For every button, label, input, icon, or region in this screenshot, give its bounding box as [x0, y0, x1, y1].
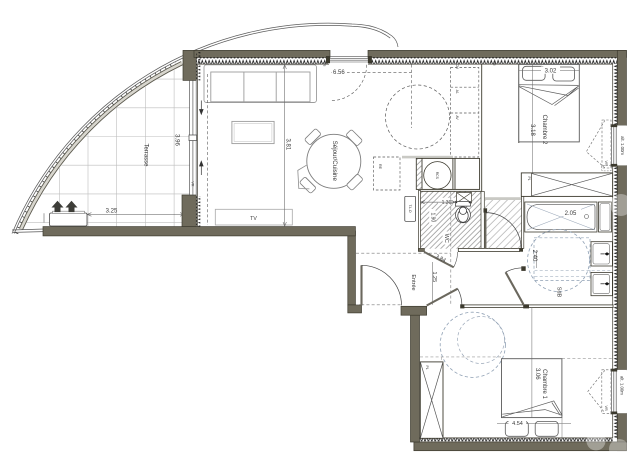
svg-text:alt. 1.00m: alt. 1.00m	[620, 136, 625, 155]
svg-text:Séjour/Cuisine: Séjour/Cuisine	[331, 141, 338, 182]
svg-text:3.18: 3.18	[529, 124, 535, 136]
svg-text:1.30: 1.30	[442, 200, 452, 206]
svg-text:3.06: 3.06	[534, 368, 540, 380]
svg-text:Chambre 1: Chambre 1	[541, 369, 547, 399]
svg-text:1.25: 1.25	[431, 271, 437, 282]
svg-text:6.56: 6.56	[333, 70, 345, 76]
svg-text:3.02: 3.02	[545, 69, 557, 75]
svg-text:PL: PL	[527, 177, 531, 181]
svg-text:3.81: 3.81	[285, 138, 291, 150]
svg-text:3.25: 3.25	[106, 209, 118, 215]
svg-text:VR: VR	[492, 61, 496, 66]
svg-text:Chambre 2: Chambre 2	[541, 115, 547, 145]
svg-text:SdB: SdB	[556, 287, 562, 298]
svg-text:RCS: RCS	[435, 172, 439, 180]
svg-text:RE: RE	[378, 164, 382, 170]
svg-text:VR: VR	[191, 182, 195, 187]
svg-text:TV: TV	[250, 216, 257, 222]
svg-text:2.40: 2.40	[531, 250, 537, 262]
svg-text:2.05: 2.05	[565, 211, 577, 217]
svg-text:CU: CU	[455, 64, 459, 69]
svg-text:Terrasse: Terrasse	[143, 143, 149, 167]
svg-text:VR: VR	[604, 406, 608, 412]
svg-text:PL: PL	[425, 366, 429, 370]
svg-text:alt. 1.00m: alt. 1.00m	[620, 376, 625, 395]
svg-text:4.54: 4.54	[512, 421, 523, 427]
svg-text:1.90: 1.90	[430, 212, 436, 222]
svg-text:3.96: 3.96	[174, 134, 180, 146]
svg-text:A1: A1	[455, 90, 459, 94]
svg-text:VR: VR	[604, 161, 608, 167]
svg-text:AV: AV	[455, 115, 459, 120]
svg-text:T.L.O: T.L.O	[408, 204, 412, 212]
svg-text:Entrée: Entrée	[410, 274, 416, 290]
svg-text:VR: VR	[322, 62, 326, 67]
svg-text:WC: WC	[443, 234, 449, 243]
